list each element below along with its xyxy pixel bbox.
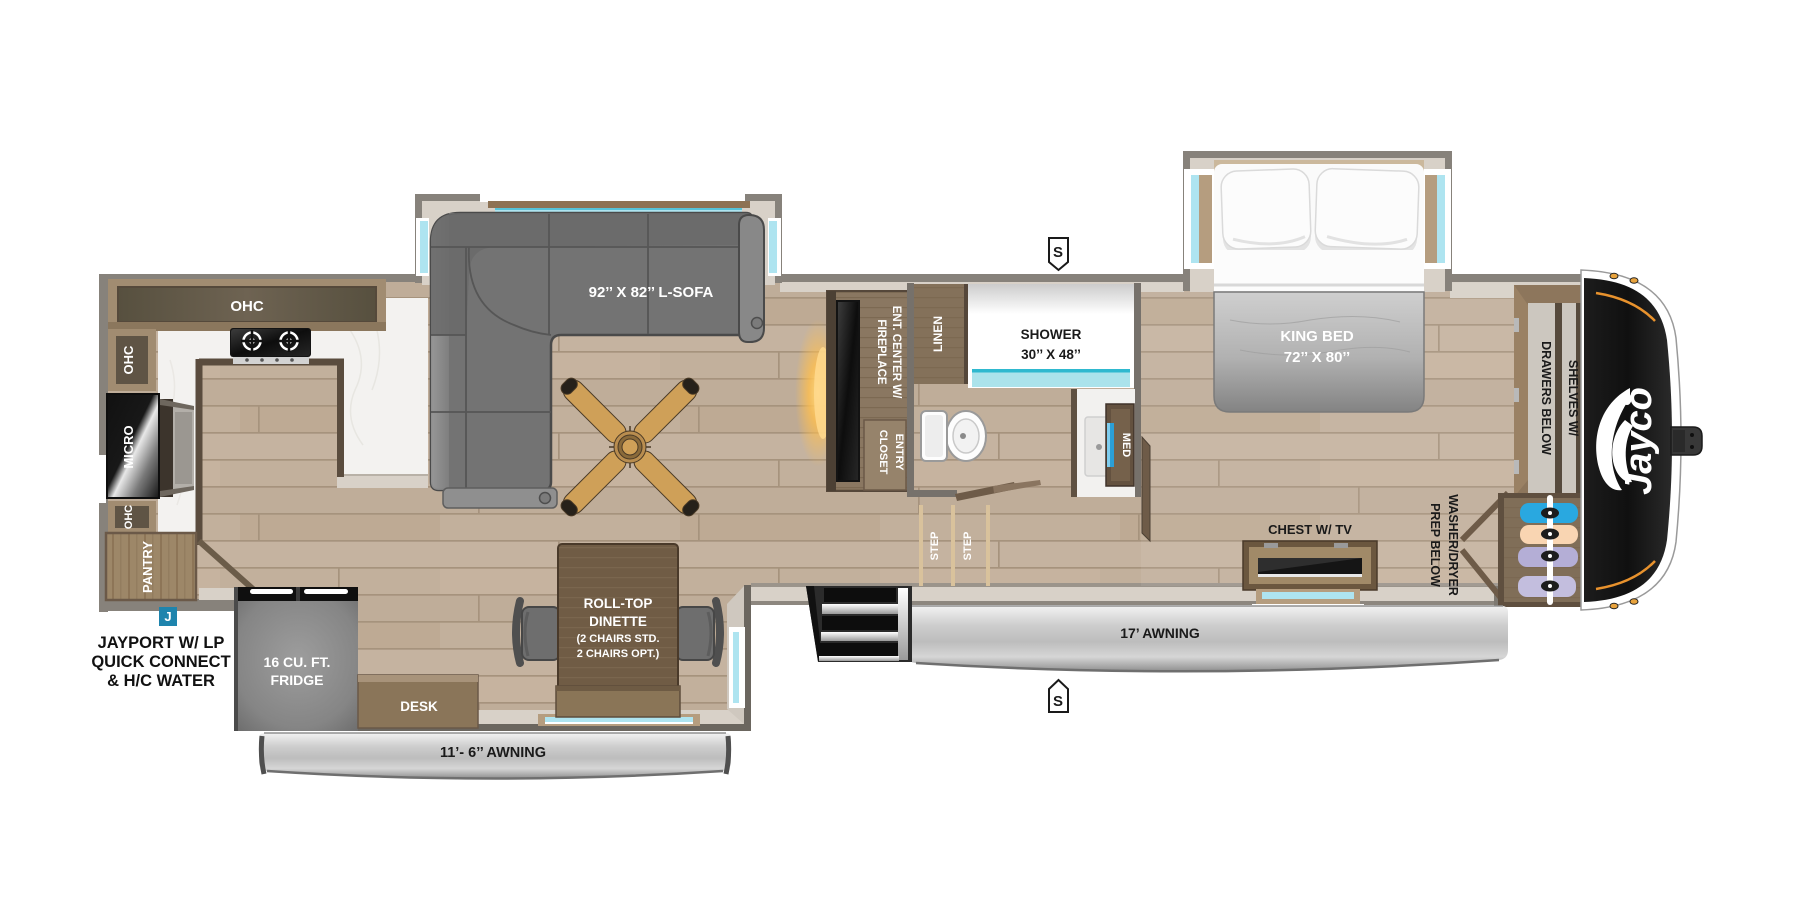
svg-text:OHC: OHC	[121, 345, 136, 375]
svg-text:11’- 6’’ AWNING: 11’- 6’’ AWNING	[440, 745, 546, 761]
svg-text:S: S	[1053, 244, 1063, 261]
svg-text:DESK: DESK	[400, 699, 438, 714]
svg-text:OHC: OHC	[230, 298, 264, 315]
svg-text:17’ AWNING: 17’ AWNING	[1120, 625, 1200, 641]
svg-text:FIREPLACE: FIREPLACE	[875, 319, 887, 385]
svg-text:OHC: OHC	[123, 505, 135, 530]
svg-text:ENT. CENTER W/: ENT. CENTER W/	[890, 306, 902, 399]
svg-text:QUICK CONNECT: QUICK CONNECT	[91, 653, 230, 671]
svg-text:MED: MED	[1120, 433, 1132, 458]
svg-text:KING BED: KING BED	[1280, 328, 1354, 345]
svg-text:LINEN: LINEN	[931, 316, 945, 352]
svg-text:2 CHAIRS OPT.): 2 CHAIRS OPT.)	[577, 648, 660, 660]
svg-text:CLOSET: CLOSET	[877, 430, 889, 475]
svg-text:16 CU. FT.: 16 CU. FT.	[264, 654, 331, 670]
svg-text:S: S	[1053, 693, 1063, 710]
svg-text:J: J	[164, 609, 171, 624]
svg-text:PANTRY: PANTRY	[140, 541, 155, 593]
svg-text:& H/C WATER: & H/C WATER	[107, 672, 215, 690]
svg-text:92’’ X 82’’ L-SOFA: 92’’ X 82’’ L-SOFA	[589, 284, 714, 301]
svg-text:STEP: STEP	[962, 532, 974, 561]
svg-text:ENTRY: ENTRY	[893, 434, 905, 472]
svg-text:SHELVES W/: SHELVES W/	[1566, 360, 1580, 437]
svg-text:CHEST W/ TV: CHEST W/ TV	[1268, 522, 1352, 537]
svg-text:STEP: STEP	[929, 532, 941, 561]
svg-text:DINETTE: DINETTE	[589, 614, 647, 629]
svg-text:MICRO: MICRO	[121, 425, 136, 468]
svg-text:PREP BELOW: PREP BELOW	[1428, 503, 1442, 587]
svg-text:WASHER/DRYER: WASHER/DRYER	[1446, 494, 1460, 596]
svg-text:SHOWER: SHOWER	[1021, 327, 1082, 342]
svg-text:ROLL-TOP: ROLL-TOP	[584, 596, 653, 611]
svg-text:FRIDGE: FRIDGE	[271, 672, 324, 688]
svg-text:(2 CHAIRS STD.: (2 CHAIRS STD.	[576, 633, 659, 645]
svg-text:DRAWERS BELOW: DRAWERS BELOW	[1539, 341, 1553, 455]
svg-text:Jayco: Jayco	[1618, 387, 1660, 495]
svg-text:JAYPORT W/ LP: JAYPORT W/ LP	[98, 634, 225, 652]
svg-text:30’’ X 48’’: 30’’ X 48’’	[1021, 347, 1081, 362]
svg-text:72’’ X 80’’: 72’’ X 80’’	[1284, 349, 1350, 366]
